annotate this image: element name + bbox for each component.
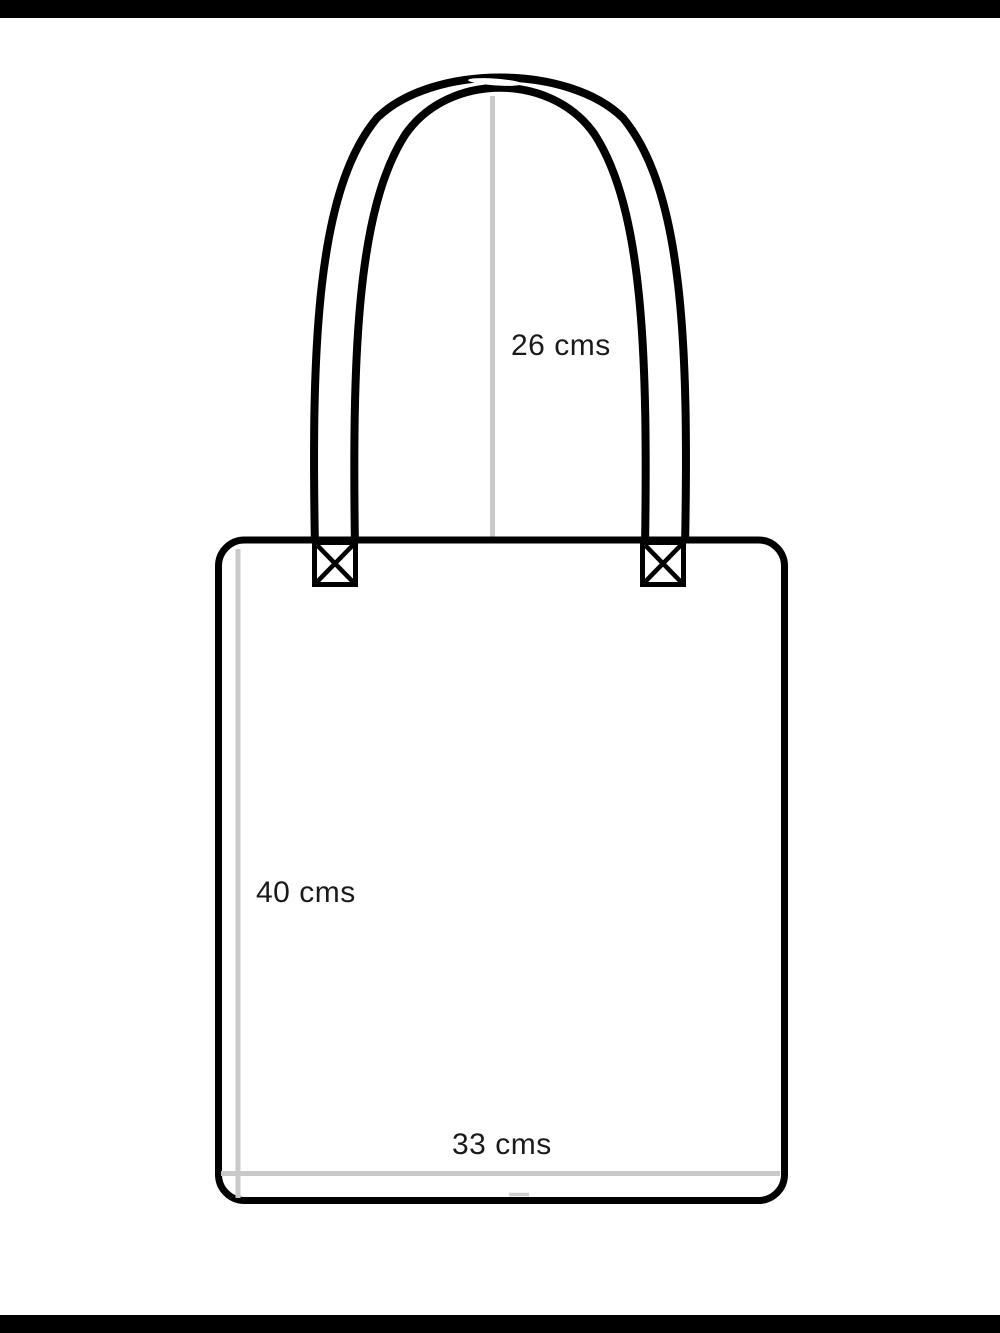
bag-height-label: 40 cms — [256, 878, 356, 908]
handle-attachment-left — [315, 543, 356, 585]
handle-attachment-right — [643, 543, 684, 585]
handle-height-label: 26 cms — [511, 331, 611, 361]
handle-inner-edge — [354, 88, 645, 548]
bag-width-label: 33 cms — [452, 1130, 552, 1160]
bag-body-outline — [219, 540, 785, 1201]
handle-strap — [314, 77, 686, 548]
handle-outer-edge — [314, 78, 686, 549]
tote-bag-measurement-diagram: 26 cms 40 cms 33 cms — [0, 0, 1000, 1333]
